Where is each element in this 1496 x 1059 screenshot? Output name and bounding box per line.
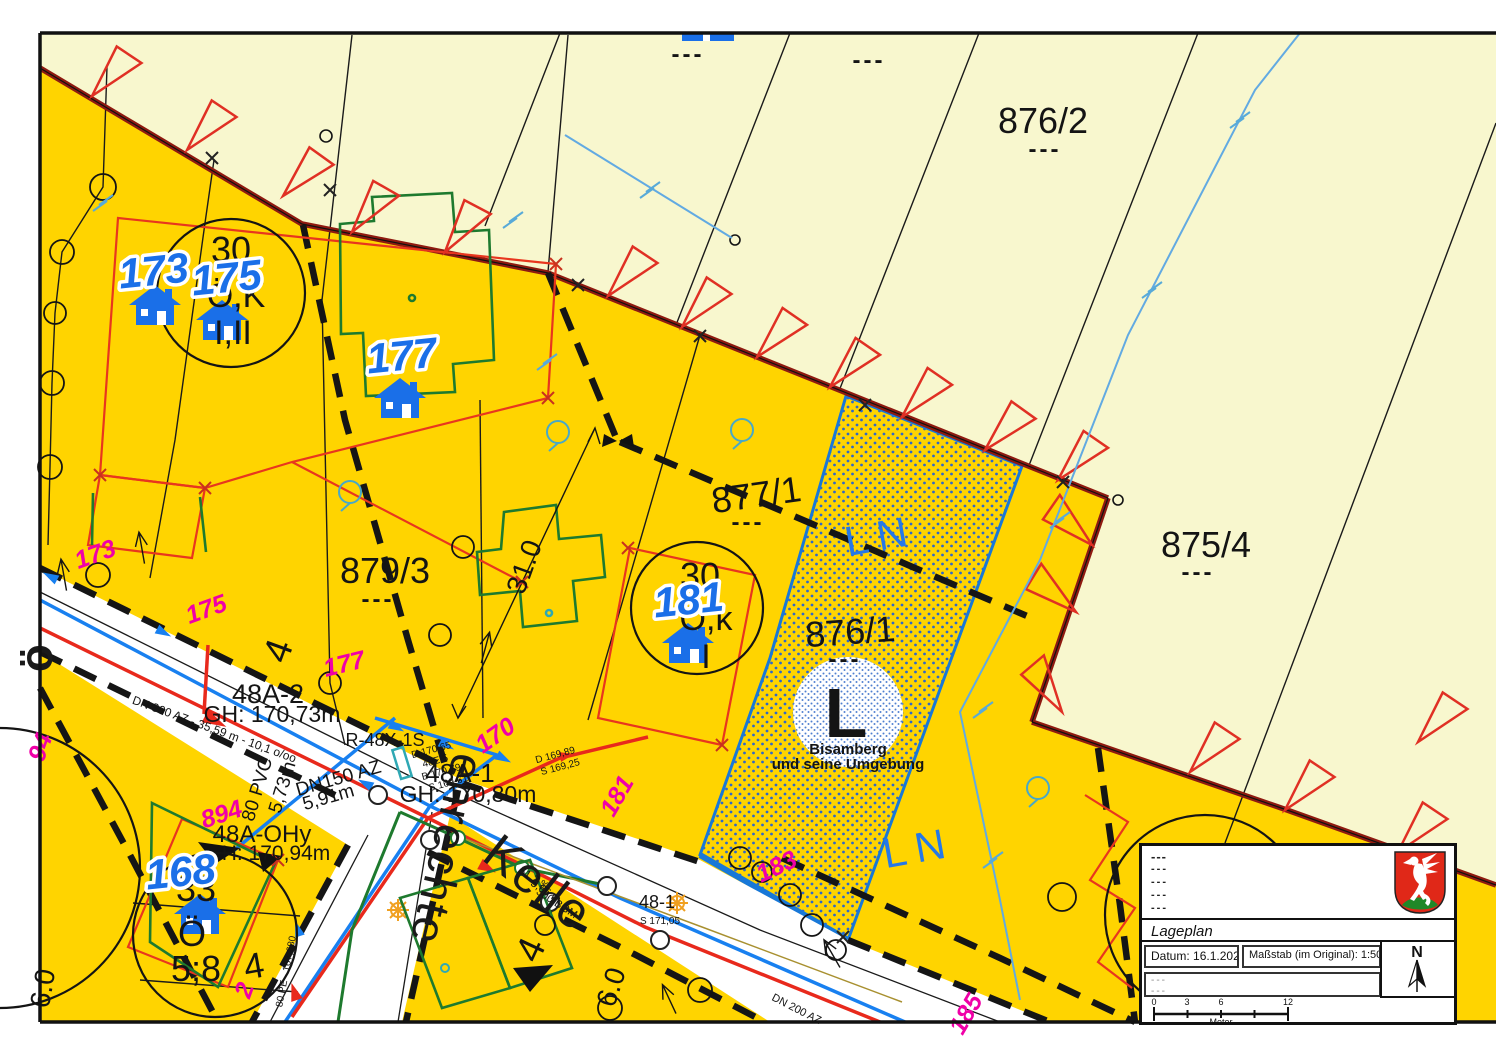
title-block: --- --- --- --- --- Lageplan Datum: 16.1…: [1139, 843, 1457, 1025]
legend-note: ---: [1151, 975, 1374, 986]
map-label: R-48X-1S: [345, 730, 424, 750]
coat-of-arms: [1392, 849, 1448, 915]
scale-unit: Meter: [1209, 1017, 1232, 1026]
map-label: ---: [732, 509, 765, 536]
parcel-label-879-3: 879/3: [340, 550, 430, 591]
house-number-168: 168: [143, 844, 218, 898]
map-label: 48-1: [639, 892, 675, 912]
house-number-173: 173: [116, 244, 191, 298]
map-label: I,II: [214, 314, 252, 352]
scale-tick: 3: [1184, 998, 1189, 1007]
map-label: ---: [362, 586, 395, 613]
house-number-177: 177: [364, 328, 440, 382]
legend-note: ---: [1151, 850, 1168, 863]
map-label: H: 170,94m: [222, 842, 331, 865]
legend-title: Lageplan: [1142, 918, 1454, 942]
date-value: 16.1.2026: [1193, 949, 1239, 963]
scale-tick: 0: [1151, 998, 1156, 1007]
north-label: N: [1411, 944, 1423, 961]
scale-bar: 0 3 6 12 Meter: [1148, 998, 1308, 1026]
legend-scale: Maßstab (im Original): 1:500: [1242, 945, 1381, 968]
scale-label: Maßstab (im Original):: [1249, 949, 1358, 961]
legend-notes: --- --- --- --- ---: [1151, 850, 1168, 915]
map-label: S 171,05: [640, 916, 680, 927]
scale-value: 1:500: [1361, 949, 1381, 961]
map-label: I: [701, 638, 710, 676]
legend-note: ---: [1151, 876, 1168, 889]
scale-tick: 12: [1283, 998, 1293, 1007]
map-label: ---: [853, 47, 886, 74]
legend-notes-2: --- ---: [1144, 972, 1381, 997]
map-label: GH: 170,80m: [400, 781, 537, 807]
legend-date: Datum: 16.1.2026: [1144, 945, 1239, 968]
house-number-175: 175: [189, 250, 264, 304]
map-label: ---: [1029, 136, 1062, 163]
map-label: 5;8: [171, 948, 221, 989]
map-label: und seine Umgebung: [772, 756, 925, 773]
house-number-181: 181: [651, 573, 726, 627]
parcel-label-876-2: 876/2: [998, 100, 1088, 141]
legend-note: ---: [1151, 889, 1168, 902]
map-label: ---: [672, 41, 705, 68]
scale-tick: 6: [1218, 998, 1223, 1007]
legend-note: ---: [1151, 863, 1168, 876]
legend-note: ---: [1151, 986, 1374, 997]
lageplan-map: 876/2---875/4---877/1---879/3---876/1---…: [0, 0, 1496, 1059]
map-label: ---: [1182, 559, 1215, 586]
map-label: GH: 170,73m: [204, 701, 341, 727]
map-label: ö: [10, 644, 62, 672]
north-box: N: [1380, 942, 1454, 998]
date-label: Datum:: [1151, 949, 1190, 963]
map-label: ---: [829, 646, 862, 673]
legend-note: ---: [1151, 902, 1168, 915]
north-arrow-icon: N: [1382, 942, 1452, 996]
